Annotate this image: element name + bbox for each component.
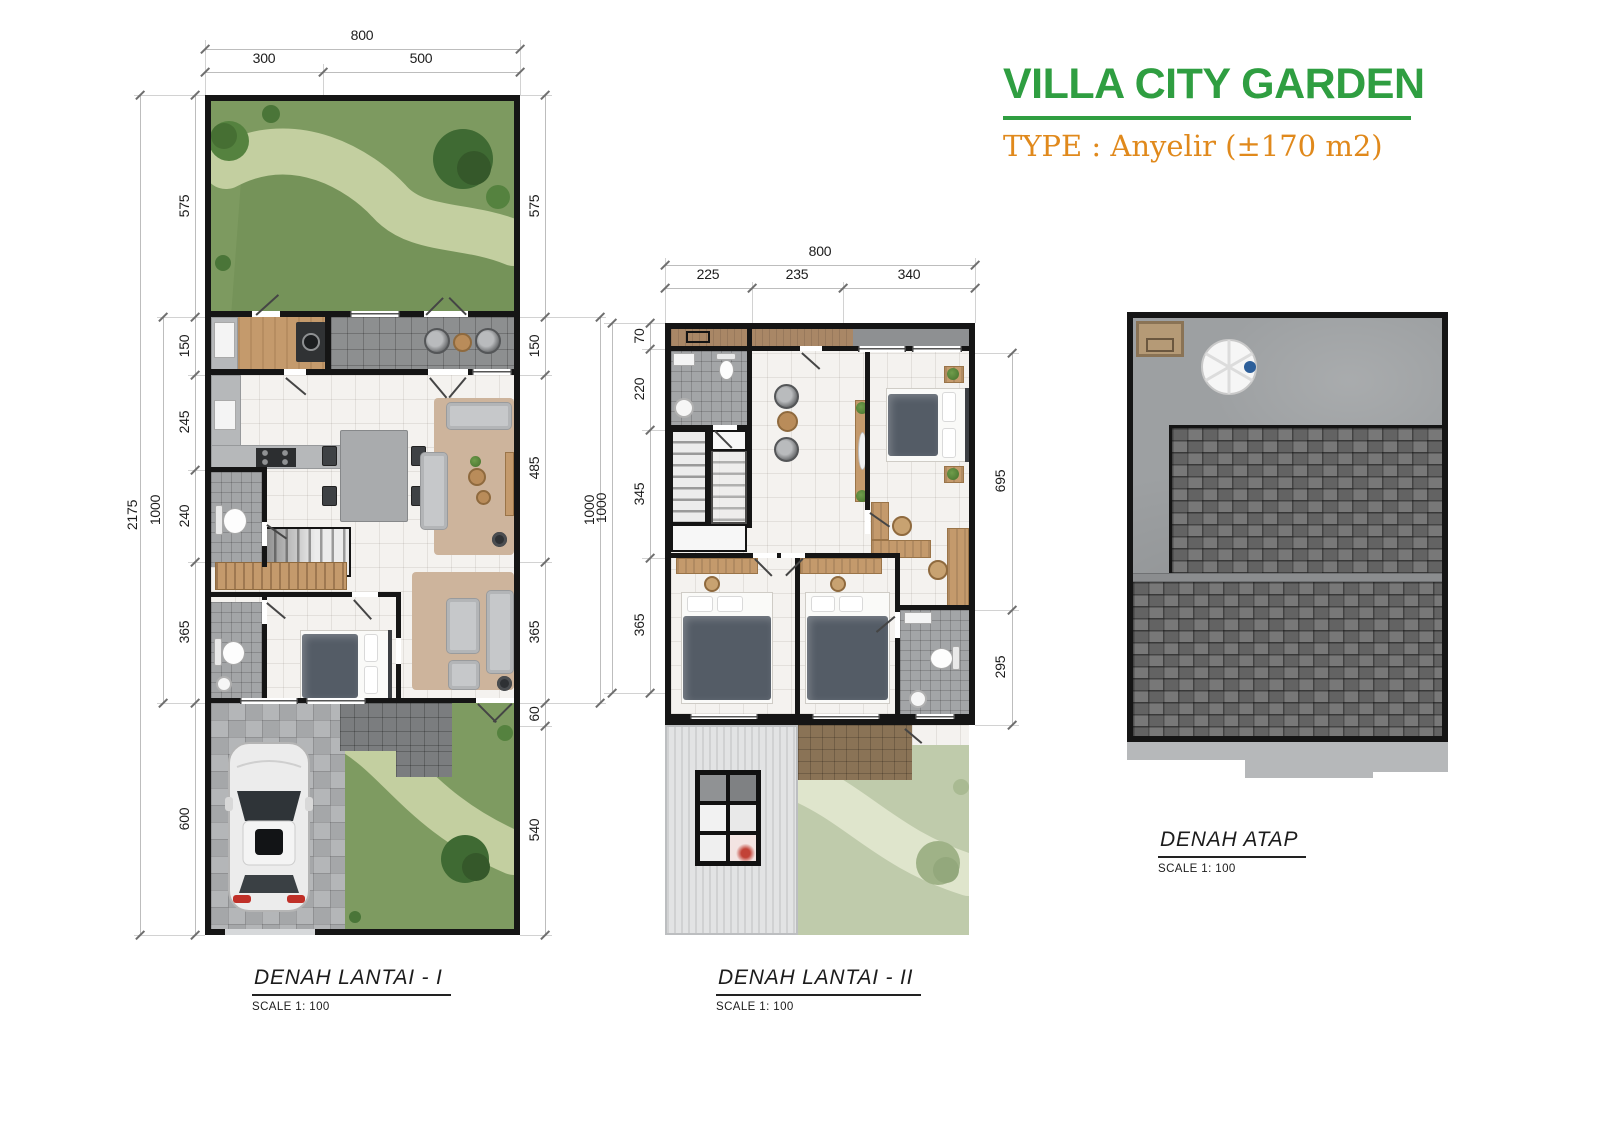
dimension-label: 345: [631, 483, 647, 506]
balcony-terrace: [798, 725, 912, 780]
dimension-label: 2175: [124, 500, 140, 530]
dimension-label: 240: [176, 505, 192, 528]
extension-line: [520, 95, 552, 96]
skylight-pane: [730, 805, 756, 831]
dimension-line: [195, 95, 196, 935]
extension-line: [642, 558, 665, 559]
dimension-line: [1012, 353, 1013, 725]
title-block: VILLA CITY GARDEN TYPE : Anyelir (±170 m…: [1003, 60, 1411, 163]
dimension-label: 540: [526, 819, 542, 842]
extension-line: [157, 317, 205, 318]
dimension-line: [650, 323, 651, 693]
dimension-line: [205, 72, 520, 73]
dimension-label: 600: [176, 808, 192, 831]
extension-line: [520, 703, 606, 704]
floor1-caption-title: DENAH LANTAI - I: [252, 966, 451, 996]
dimension-label: 225: [697, 266, 720, 282]
skylight-pane: [700, 805, 726, 831]
extension-line: [520, 726, 552, 727]
dimension-label: 295: [992, 656, 1008, 679]
page-subtitle: TYPE : Anyelir (±170 m2): [1003, 129, 1411, 163]
roof-caption: DENAH ATAP SCALE 1: 100: [1158, 828, 1306, 875]
dimension-label: 800: [809, 243, 832, 259]
dimension-line: [612, 323, 613, 693]
extension-line: [520, 562, 552, 563]
roof-caption-scale: SCALE 1: 100: [1158, 863, 1306, 875]
extension-line: [642, 349, 665, 350]
extension-line: [520, 375, 552, 376]
floor2-caption-title: DENAH LANTAI - II: [716, 966, 921, 996]
dimension-label: 150: [176, 335, 192, 358]
dimension-label: 60: [526, 706, 542, 721]
dimension-label: 365: [631, 614, 647, 637]
floor1-caption-scale: SCALE 1: 100: [252, 1001, 451, 1013]
extension-line: [604, 693, 665, 694]
dimension-label: 235: [786, 266, 809, 282]
extension-line: [604, 323, 665, 324]
extension-line: [520, 935, 552, 936]
extension-line: [642, 430, 665, 431]
floorplan-sheet: VILLA CITY GARDEN TYPE : Anyelir (±170 m…: [0, 0, 1600, 1123]
extension-line: [665, 258, 666, 323]
dimension-label: 365: [176, 621, 192, 644]
dimension-label: 245: [176, 411, 192, 434]
dimension-label: 1000: [593, 493, 609, 523]
dimension-label: 365: [526, 621, 542, 644]
extension-line: [520, 317, 606, 318]
dimension-label: 800: [351, 27, 374, 43]
skylight-pane: [730, 835, 756, 861]
dimension-label: 1000: [147, 495, 163, 525]
extension-line: [188, 375, 205, 376]
driveway-curb: [225, 929, 315, 935]
roof-caption-title: DENAH ATAP: [1158, 828, 1306, 858]
plan-outline: [665, 323, 975, 725]
dimension-label: 340: [898, 266, 921, 282]
page-title: VILLA CITY GARDEN: [1003, 60, 1411, 120]
skylight-pane: [700, 775, 726, 801]
floor1-caption: DENAH LANTAI - I SCALE 1: 100: [252, 966, 451, 1013]
dimension-line: [545, 95, 546, 935]
dimension-label: 575: [526, 195, 542, 218]
dimension-label: 485: [526, 457, 542, 480]
dimension-label: 575: [176, 195, 192, 218]
dimension-line: [665, 288, 975, 289]
skylight-pane: [700, 835, 726, 861]
extension-line: [188, 470, 205, 471]
extension-line: [157, 703, 205, 704]
extension-line: [188, 562, 205, 563]
plan-outline: [205, 95, 520, 935]
floor2-caption-scale: SCALE 1: 100: [716, 1001, 921, 1013]
dimension-line: [140, 95, 141, 935]
dimension-label: 70: [631, 328, 647, 343]
dimension-line: [163, 317, 164, 703]
dimension-label: 220: [631, 378, 647, 401]
skylight-pane: [730, 775, 756, 801]
extension-line: [975, 258, 976, 323]
skylight: [695, 770, 761, 866]
roof-outline: [1127, 312, 1448, 742]
floor2-caption: DENAH LANTAI - II SCALE 1: 100: [716, 966, 921, 1013]
dimension-label: 695: [992, 470, 1008, 493]
dimension-label: 150: [526, 335, 542, 358]
dimension-label: 500: [410, 50, 433, 66]
dimension-label: 300: [253, 50, 276, 66]
roof-apron: [1127, 742, 1448, 760]
